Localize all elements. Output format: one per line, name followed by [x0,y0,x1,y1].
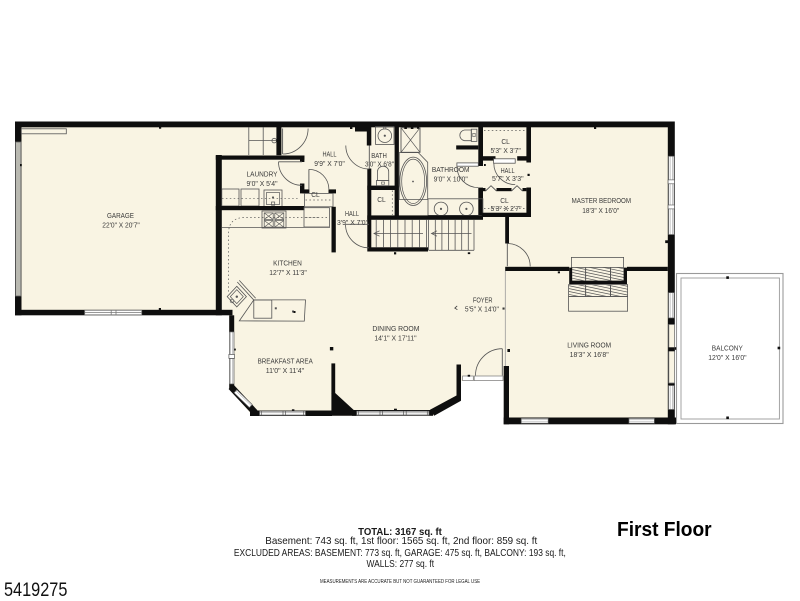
svg-text:FOYER: FOYER [473,296,493,305]
svg-text:14'1" X 17'11": 14'1" X 17'11" [374,333,417,342]
svg-text:MASTER BEDROOM: MASTER BEDROOM [572,196,631,205]
svg-text:11'0" X 11'4": 11'0" X 11'4" [266,366,305,375]
svg-text:22'0" X 20'7": 22'0" X 20'7" [102,220,140,229]
svg-text:18'3" X 16'0": 18'3" X 16'0" [582,206,619,215]
svg-text:12'7" X 11'3": 12'7" X 11'3" [269,268,307,277]
svg-text:9'0" X 10'0": 9'0" X 10'0" [434,174,468,183]
svg-text:HALL: HALL [345,209,359,218]
svg-text:LIVING ROOM: LIVING ROOM [567,340,611,349]
svg-text:5'5" X 14'0": 5'5" X 14'0" [465,304,499,313]
svg-text:GARAGE: GARAGE [107,211,134,220]
svg-text:18'3" X 16'8": 18'3" X 16'8" [570,350,609,359]
svg-text:BREAKFAST AREA: BREAKFAST AREA [258,357,313,366]
svg-text:3'9" X 7'0": 3'9" X 7'0" [337,218,368,227]
svg-text:9'0" X 5'4": 9'0" X 5'4" [247,179,278,188]
svg-text:5'7" X 3'3": 5'7" X 3'3" [492,174,524,183]
svg-text:12'0" X 16'0": 12'0" X 16'0" [708,353,747,362]
svg-text:HALL: HALL [323,150,337,159]
svg-text:9'9" X 7'0": 9'9" X 7'0" [314,159,345,168]
svg-text:LAUNDRY: LAUNDRY [247,170,278,179]
svg-text:DINING ROOM: DINING ROOM [372,324,419,333]
svg-text:BALCONY: BALCONY [712,344,743,353]
svg-text:5'3" X 3'7": 5'3" X 3'7" [490,146,521,155]
svg-text:CL: CL [377,197,386,204]
svg-text:KITCHEN: KITCHEN [273,259,302,268]
svg-text:CL: CL [311,192,320,199]
svg-text:5'3" X 2'7": 5'3" X 2'7" [491,204,522,213]
